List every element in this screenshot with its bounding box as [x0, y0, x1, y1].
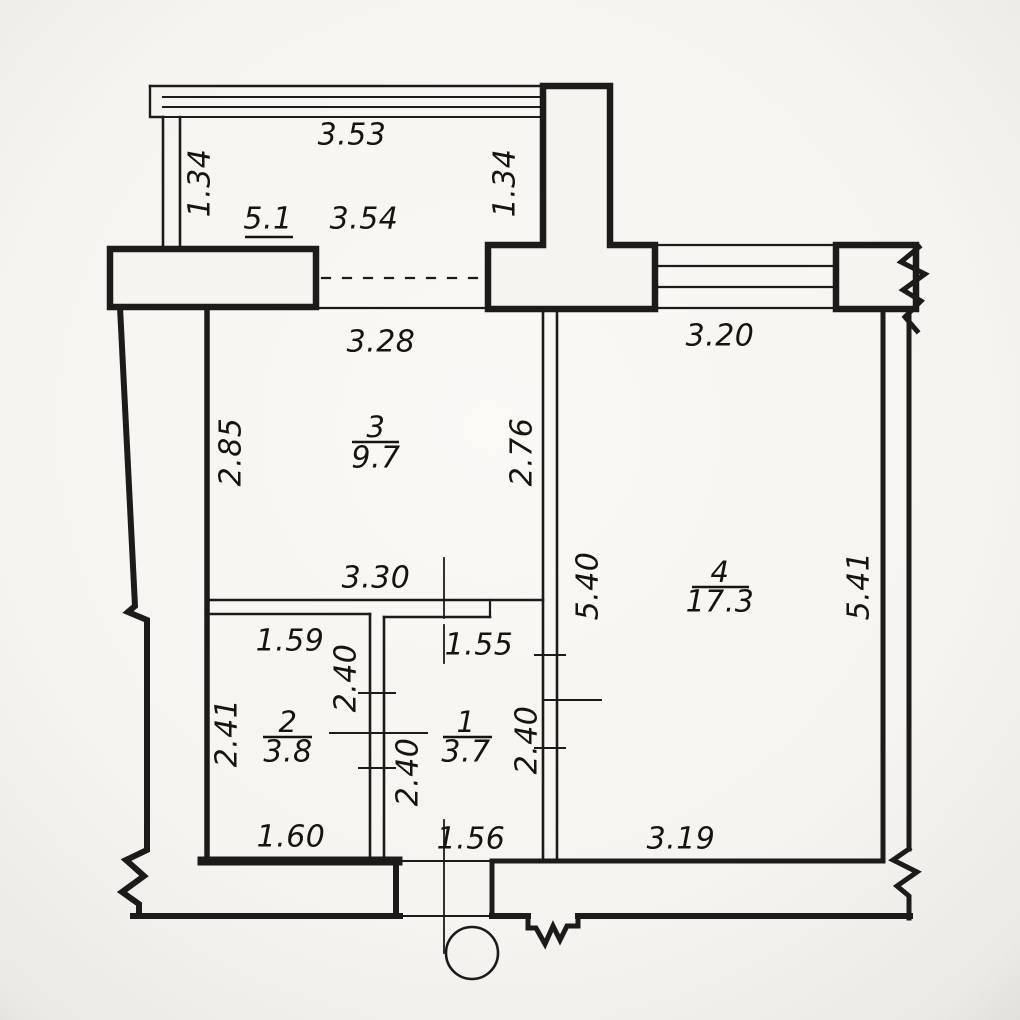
dimension-label: 5.40	[571, 552, 606, 621]
wall-pier-top-left	[110, 249, 316, 307]
room-area: 9.7	[351, 441, 400, 476]
room-area: 3.7	[441, 735, 490, 770]
room-label-room-3: 39.7	[351, 410, 400, 476]
dimension-label: 2.40	[510, 706, 545, 775]
dimension-label: 2.85	[214, 418, 249, 487]
dimension-label: 1.59	[256, 624, 325, 659]
dimension-label: 3.53	[318, 118, 387, 153]
dimension-label: 1.34	[488, 149, 523, 218]
dimension-label: 2.76	[505, 418, 540, 487]
exterior-wall-bottom	[133, 861, 910, 944]
partition-room3-bottom	[207, 600, 543, 617]
dimension-label: 2.40	[391, 738, 426, 807]
window-room-4	[655, 245, 836, 308]
room-area: 3.8	[263, 735, 312, 770]
dimension-label: 3.20	[686, 319, 755, 354]
dimension-label: 5.41	[842, 552, 877, 621]
dimension-label: 2.40	[329, 644, 364, 713]
floor-plan-scan: 3.531.341.343.543.283.202.852.765.405.41…	[0, 0, 1020, 1020]
dimension-label: 2.41	[210, 699, 245, 768]
break-line-bottom-center	[528, 916, 578, 944]
dimension-label: 3.28	[347, 325, 416, 360]
room-area: 5.1	[243, 202, 292, 237]
room-number: 3	[367, 410, 386, 444]
dimension-label: 3.54	[330, 202, 399, 237]
exterior-wall-right	[883, 309, 917, 918]
dimension-label: 1.60	[257, 820, 326, 855]
room-label-balcony: 5.1	[243, 202, 293, 238]
room-area: 17.3	[686, 585, 755, 620]
break-line-bottom-right	[893, 849, 917, 918]
labels-layer: 3.531.341.343.543.283.202.852.765.405.41…	[183, 118, 877, 857]
dimension-label: 3.19	[647, 822, 716, 857]
entry-axis-circle	[446, 927, 498, 979]
dimension-label: 1.55	[445, 628, 514, 663]
dimension-label: 3.30	[342, 561, 411, 596]
wall-block-top-right	[836, 245, 916, 309]
exterior-wall-left	[120, 307, 207, 915]
dimension-label: 1.34	[183, 149, 218, 218]
room-label-room-1: 13.7	[441, 705, 492, 770]
room-label-room-2: 23.8	[263, 705, 313, 770]
dimension-label: 1.56	[437, 822, 506, 857]
room-label-room-4: 417.3	[686, 555, 755, 620]
